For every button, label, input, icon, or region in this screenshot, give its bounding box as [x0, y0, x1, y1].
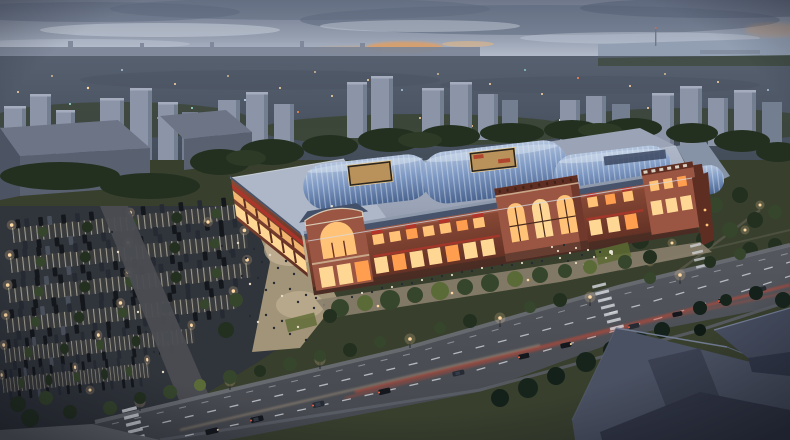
vignette — [0, 0, 790, 440]
mall-aerial-rendering — [0, 0, 790, 440]
rendering-stage — [0, 0, 790, 440]
